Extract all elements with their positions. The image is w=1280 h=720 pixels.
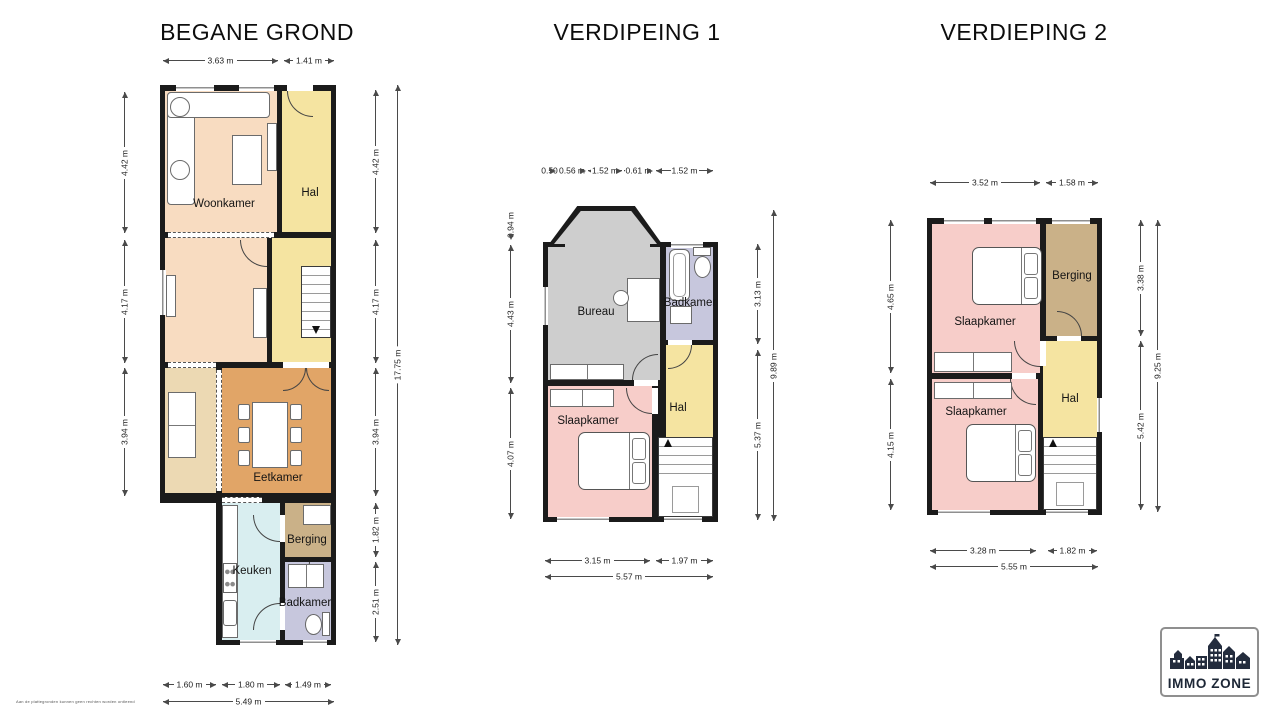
stair-direction-icon — [312, 326, 320, 334]
room-label: Hal — [1061, 393, 1078, 405]
tv-cabinet — [267, 123, 277, 171]
window — [176, 85, 214, 91]
bathtub — [669, 249, 690, 301]
dim-bottom: 1.80 m — [222, 684, 280, 685]
dim-top: 1.52 m — [588, 170, 622, 171]
door-gap — [634, 380, 658, 386]
dim-right: 1.82 m — [375, 503, 376, 557]
window — [303, 640, 327, 645]
window — [1046, 510, 1088, 515]
dim-right-total: 9.25 m — [1157, 220, 1158, 512]
room-label: Bureau — [577, 306, 614, 318]
desk — [627, 278, 660, 322]
desk-chair — [613, 290, 629, 306]
plan-title-verdieping-2: VERDIEPING 2 — [940, 19, 1107, 46]
dim-bottom: 1.49 m — [285, 684, 331, 685]
dim-left: 4.17 m — [124, 240, 125, 363]
dim-right: 4.17 m — [375, 240, 376, 363]
dim-right: 4.42 m — [375, 90, 376, 233]
closet — [550, 389, 614, 407]
open-divider — [222, 497, 262, 503]
disclaimer-text: Aan de plattegronden kunnen geen rechten… — [16, 699, 135, 704]
dim-top: 1.58 m — [1046, 182, 1098, 183]
dim-bottom: 3.28 m — [930, 550, 1036, 551]
floorplan-sheet: BEGANE GROND 3.63 m 1.41 m — [0, 0, 1280, 720]
window — [557, 517, 609, 522]
dim-left: 0.94 m — [510, 210, 511, 240]
immo-zone-logo: IMMO ZONE — [1160, 627, 1259, 697]
dim-left: 4.43 m — [510, 245, 511, 383]
door-gap — [1040, 341, 1046, 366]
dim-right: 5.42 m — [1140, 341, 1141, 510]
dim-bottom: 3.15 m — [545, 560, 650, 561]
dim-right: 3.94 m — [375, 368, 376, 496]
chair — [290, 450, 302, 466]
window — [938, 510, 990, 515]
room-label: Badkamer — [664, 297, 716, 309]
dim-right: 3.13 m — [757, 244, 758, 344]
room-label: Eetkamer — [253, 472, 302, 484]
room-label: Hal — [301, 187, 318, 199]
window — [1097, 398, 1102, 432]
dim-bottom-total: 5.55 m — [930, 566, 1098, 567]
closet — [168, 392, 196, 458]
window — [664, 517, 702, 522]
bed — [578, 432, 650, 490]
staircase — [658, 437, 713, 517]
dim-left: 4.07 m — [510, 388, 511, 519]
window — [944, 218, 984, 224]
room-label: Hal — [669, 402, 686, 414]
sofa-cushion — [170, 160, 190, 180]
dim-left: 4.42 m — [124, 92, 125, 233]
sofa-cushion — [170, 97, 190, 117]
dim-top: 1.52 m — [656, 170, 713, 171]
room-label: Slaapkamer — [945, 406, 1006, 418]
dim-right: 2.51 m — [375, 562, 376, 642]
window — [543, 287, 548, 325]
staircase — [1043, 437, 1097, 510]
closet — [934, 352, 1012, 372]
stair-direction-icon — [664, 439, 672, 447]
room-label: Keuken — [232, 565, 271, 577]
stair-direction-icon — [1049, 439, 1057, 447]
worktop — [303, 505, 331, 525]
door-gap — [1057, 336, 1081, 341]
kitchen-sink — [223, 600, 237, 626]
dim-right-total: 9.89 m — [773, 210, 774, 521]
chair — [290, 404, 302, 420]
room-label: Slaapkamer — [557, 415, 618, 427]
dim-bottom-total: 5.49 m — [163, 701, 334, 702]
closet — [934, 382, 1012, 399]
cabinet — [550, 364, 624, 380]
dim-bottom: 1.82 m — [1048, 550, 1097, 551]
dim-right: 3.38 m — [1140, 220, 1141, 336]
dim-left: 4.15 m — [890, 379, 891, 510]
door-gap — [280, 515, 285, 542]
toilet — [305, 614, 322, 635]
room-label: Woonkamer — [193, 198, 255, 210]
dim-top: 3.52 m — [930, 182, 1040, 183]
dim-bottom: 1.97 m — [656, 560, 713, 561]
dresser — [253, 288, 267, 338]
skyline-icon — [1169, 634, 1251, 670]
chair — [238, 450, 250, 466]
dim-top: 0.56 m — [558, 170, 586, 171]
room-label: Berging — [1052, 270, 1092, 282]
dim-top: 0.50 — [543, 170, 556, 171]
toilet-tank — [322, 612, 330, 636]
toilet-tank — [693, 247, 711, 256]
washstand — [288, 564, 324, 588]
window — [992, 218, 1036, 224]
room-label: Slaapkamer — [954, 316, 1015, 328]
dim-right-total: 17.75 m — [397, 85, 398, 645]
room-label: Berging — [287, 534, 327, 546]
dim-top: 3.63 m — [163, 60, 278, 61]
dining-table — [252, 402, 288, 468]
bed — [966, 424, 1036, 482]
dim-left: 3.94 m — [124, 368, 125, 496]
open-divider — [168, 232, 274, 238]
toilet — [694, 256, 711, 278]
window — [240, 640, 276, 645]
open-divider — [168, 362, 216, 368]
dim-bottom: 1.60 m — [163, 684, 216, 685]
dim-left: 4.65 m — [890, 220, 891, 373]
plan-title-verdieping-1: VERDIPEING 1 — [553, 19, 720, 46]
coffee-table — [232, 135, 262, 185]
room-hal — [1043, 341, 1097, 437]
dim-bottom-total: 5.57 m — [545, 576, 713, 577]
chair — [290, 427, 302, 443]
dim-top: 1.41 m — [284, 60, 334, 61]
window — [239, 85, 274, 91]
door-gap — [652, 388, 658, 414]
plan-title-begane-grond: BEGANE GROND — [160, 19, 354, 46]
window — [1052, 218, 1090, 224]
bed — [972, 247, 1042, 305]
dim-top: 0.61 m — [624, 170, 653, 171]
logo-text: IMMO ZONE — [1162, 676, 1257, 691]
chair — [238, 427, 250, 443]
chair — [238, 404, 250, 420]
open-divider — [216, 370, 222, 491]
dim-right: 5.37 m — [757, 350, 758, 520]
radiator — [166, 275, 176, 317]
room-label: Badkamer — [279, 597, 331, 609]
